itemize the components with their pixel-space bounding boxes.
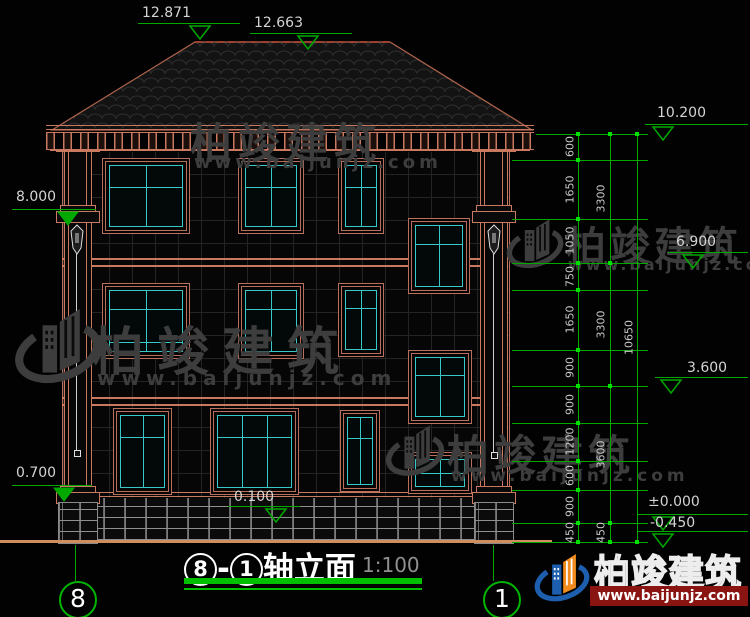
window [408, 350, 472, 424]
title-underline [184, 588, 422, 590]
elevation-triangle-icon [188, 25, 212, 41]
dimension-extension-line [512, 263, 648, 264]
dimension-value: 1650 [564, 167, 577, 211]
dimension-value: 3300 [595, 302, 608, 346]
watermark-site: www.baijunjz.com [194, 152, 442, 173]
window-mullion [218, 437, 291, 438]
elevation-value: 3.600 [687, 360, 727, 376]
right-lamp-icon [487, 224, 501, 255]
elevation-drawing: 柏竣建筑 www.baijunjz.com 柏竣建筑 www.baijunjz.… [0, 0, 750, 617]
elevation-triangle-icon [681, 254, 705, 270]
elevation-value: 12.871 [142, 5, 191, 21]
window-glass [415, 225, 463, 287]
window-mullion [246, 187, 296, 188]
window-mullion [110, 187, 182, 188]
dimension-tick [576, 540, 580, 544]
dimension-extension-line [512, 423, 648, 424]
company-logo-site: www.baijunjz.com [590, 586, 748, 606]
plinth-line [62, 496, 508, 497]
watermark-logo-icon [384, 418, 446, 486]
company-logo-icon [533, 546, 591, 612]
watermark-logo-icon [505, 212, 565, 278]
watermark-site: www.baijunjz.com [568, 255, 750, 274]
dimension-extension-line [512, 290, 648, 291]
left-lamp-icon [70, 224, 84, 255]
dimension-chain-line [637, 134, 638, 542]
elevation-value: 0.700 [16, 465, 56, 481]
elevation-triangle-icon [264, 508, 288, 524]
dimension-tick [576, 459, 580, 463]
window [408, 218, 470, 294]
window-mullion [146, 166, 147, 226]
right-column-pedestal [474, 502, 514, 544]
dimension-value: 3600 [595, 432, 608, 476]
dimension-tick [576, 348, 580, 352]
elevation-marker-left-base: 0.700 [12, 485, 92, 486]
elevation-value: -0.450 [650, 515, 695, 531]
dimension-tick [576, 521, 580, 525]
elevation-marker-entry: 0.100 [228, 506, 300, 507]
dimension-value: 750 [564, 254, 577, 298]
window-mullion [361, 291, 362, 349]
elevation-value: ±0.000 [648, 494, 700, 510]
dimension-tick [576, 488, 580, 492]
dimension-tick [576, 132, 580, 136]
window-mullion [416, 375, 464, 376]
window-frame [213, 411, 296, 492]
axis-bubble-left: 8 [59, 581, 97, 617]
title-scale: 1:100 [362, 553, 420, 577]
window-frame [411, 221, 467, 291]
elevation-triangle-icon [52, 487, 76, 503]
dimension-tick [576, 421, 580, 425]
left-lamp-knob [74, 450, 81, 457]
dimension-extension-line [512, 542, 648, 543]
window-mullion [271, 166, 272, 226]
axis-bubble-right: 1 [483, 581, 521, 617]
elevation-marker-roof-ridge: 12.663 [250, 33, 352, 34]
window-glass [347, 417, 373, 485]
window-frame [411, 353, 469, 421]
elevation-value: 8.000 [16, 189, 56, 205]
window [340, 410, 380, 492]
elevation-marker-right-f2: 6.900 [668, 252, 748, 253]
window [102, 158, 190, 234]
axis-leader-left [75, 545, 76, 581]
elevation-marker-right-f1: 3.600 [655, 377, 748, 378]
elevation-marker-right-top: 10.200 [645, 124, 748, 125]
window-frame [105, 161, 187, 231]
window-frame [343, 413, 377, 489]
window-mullion [439, 226, 440, 286]
elevation-marker-right-ground: -0.450 [638, 531, 748, 532]
dimension-tick [576, 261, 580, 265]
elevation-triangle-icon [659, 379, 683, 395]
window-mullion [440, 358, 441, 416]
window-mullion [143, 416, 144, 487]
window-mullion [416, 244, 462, 245]
dimension-extension-line [512, 219, 648, 220]
window-glass [120, 415, 165, 488]
dimension-tick [608, 521, 612, 525]
window [113, 408, 172, 495]
elevation-value: 6.900 [676, 234, 716, 250]
elevation-triangle-icon [651, 126, 675, 142]
dimension-tick [576, 384, 580, 388]
window-frame [116, 411, 169, 492]
dimension-extension-line [512, 386, 648, 387]
dimension-chain-line [610, 134, 611, 542]
dimension-extension-line [512, 461, 648, 462]
window-mullion [346, 187, 376, 188]
elevation-triangle-icon [296, 35, 320, 51]
dimension-tick [576, 158, 580, 162]
elevation-value: 0.100 [234, 489, 274, 505]
dimension-value: 10650 [623, 316, 636, 360]
dimension-tick [608, 384, 612, 388]
dimension-extension-line [536, 134, 648, 135]
elevation-triangle-icon [56, 211, 80, 227]
dimension-extension-line [512, 523, 648, 524]
dimension-tick [576, 288, 580, 292]
window-glass [415, 357, 465, 417]
window-mullion [267, 416, 268, 487]
watermark-logo-icon [12, 298, 104, 398]
window-glass [217, 415, 292, 488]
left-column-pedestal [58, 502, 98, 544]
elevation-marker-roof-peak: 12.871 [138, 23, 240, 24]
window-mullion [360, 418, 361, 484]
window-mullion [242, 416, 243, 487]
window-glass [345, 165, 377, 227]
window-mullion [361, 166, 362, 226]
dimension-tick [608, 261, 612, 265]
elevation-value: 10.200 [657, 105, 706, 121]
dimension-value: 600 [564, 125, 577, 169]
elevation-value: 12.663 [254, 15, 303, 31]
title-underline [184, 578, 422, 584]
window-glass [245, 165, 297, 227]
dimension-tick [635, 132, 639, 136]
dimension-extension-line [512, 490, 648, 491]
axis-leader-right [493, 545, 494, 581]
window [210, 408, 299, 495]
dimension-value: 1650 [564, 298, 577, 342]
dimension-tick [576, 217, 580, 221]
dimension-chain-line [578, 134, 579, 542]
window-glass [109, 165, 183, 227]
dimension-extension-line [512, 160, 648, 161]
elevation-marker-left-eave: 8.000 [12, 209, 96, 210]
dimension-value: 3300 [595, 176, 608, 220]
window-mullion [348, 438, 372, 439]
dimension-tick [608, 132, 612, 136]
watermark-site: www.baijunjz.com [97, 366, 397, 390]
window-mullion [121, 437, 164, 438]
